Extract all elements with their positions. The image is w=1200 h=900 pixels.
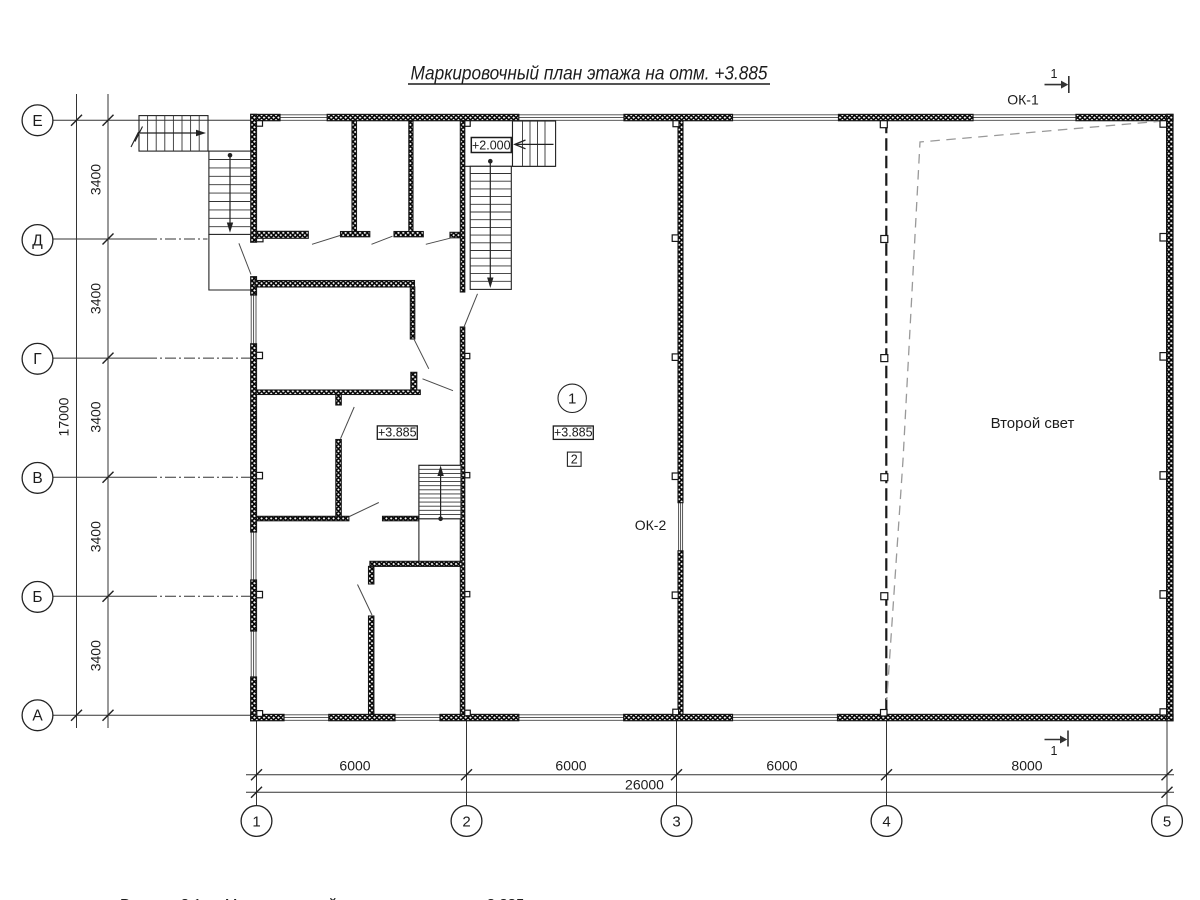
svg-text:Маркировочный план этажа на от: Маркировочный план этажа на отм. +3.885 [411,63,768,85]
svg-text:ОК-2: ОК-2 [635,517,667,533]
svg-text:А: А [32,708,43,725]
svg-text:3: 3 [672,813,680,830]
svg-text:4: 4 [882,813,890,830]
svg-text:В: В [32,470,42,487]
svg-text:Второй свет: Второй свет [991,415,1075,432]
svg-text:1: 1 [1051,744,1058,758]
svg-text:17000: 17000 [55,397,71,436]
svg-text:3400: 3400 [87,640,103,671]
svg-text:3400: 3400 [87,401,103,432]
svg-text:6000: 6000 [766,758,797,774]
svg-text:6000: 6000 [555,758,586,774]
svg-text:6000: 6000 [339,758,370,774]
svg-text:Г: Г [33,351,42,368]
svg-text:Б: Б [32,589,42,606]
svg-text:Д: Д [32,232,43,249]
svg-text:3400: 3400 [87,283,103,314]
svg-text:26000: 26000 [625,777,664,793]
svg-text:Е: Е [32,113,42,130]
svg-text:2: 2 [571,452,578,466]
svg-text:8000: 8000 [1011,758,1042,774]
svg-text:1: 1 [568,391,576,408]
svg-text:1: 1 [1051,67,1058,81]
svg-text:2: 2 [462,813,470,830]
svg-text:+3.885: +3.885 [378,426,417,440]
svg-text:3400: 3400 [87,521,103,552]
svg-text:+2.000: +2.000 [472,138,511,152]
svg-text:5: 5 [1163,813,1171,830]
svg-text:+3.885: +3.885 [554,426,593,440]
svg-text:ОК-1: ОК-1 [1007,92,1039,108]
svg-text:Рисунок 3.1 — Маркировочный пл: Рисунок 3.1 — Маркировочный план этажа н… [120,896,524,900]
svg-text:1: 1 [252,813,260,830]
svg-text:3400: 3400 [87,164,103,195]
